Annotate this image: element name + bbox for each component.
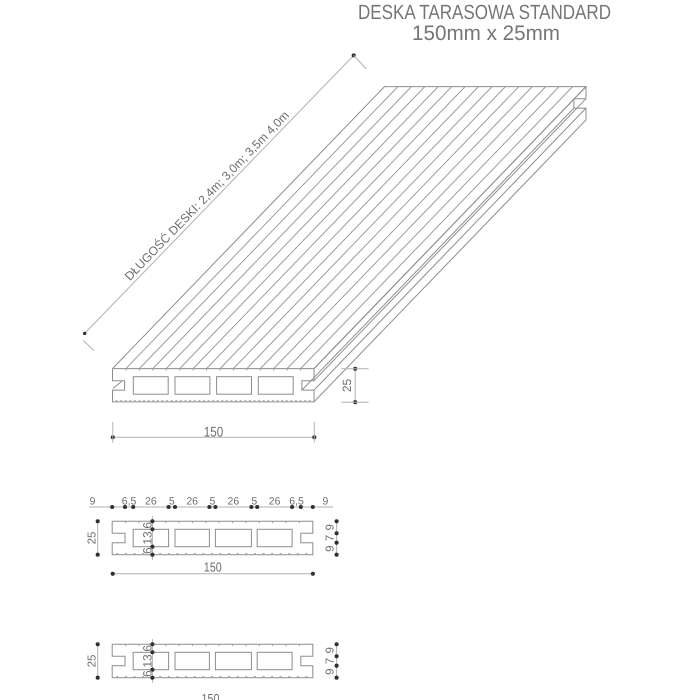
svg-text:7: 7 xyxy=(324,658,336,664)
svg-text:26: 26 xyxy=(145,495,157,507)
svg-text:26: 26 xyxy=(228,495,240,507)
svg-text:25: 25 xyxy=(340,379,354,393)
svg-text:7: 7 xyxy=(324,535,336,541)
svg-text:9: 9 xyxy=(324,668,336,674)
svg-text:13: 13 xyxy=(141,531,155,545)
svg-text:25: 25 xyxy=(86,532,98,545)
svg-text:6: 6 xyxy=(141,645,155,652)
svg-text:9: 9 xyxy=(322,495,328,507)
svg-text:6: 6 xyxy=(141,670,155,677)
svg-text:13: 13 xyxy=(141,654,155,668)
svg-text:9: 9 xyxy=(324,545,336,551)
svg-text:26: 26 xyxy=(186,495,198,507)
svg-text:6,5: 6,5 xyxy=(122,495,137,507)
svg-text:9: 9 xyxy=(324,647,336,653)
svg-text:5: 5 xyxy=(169,495,175,507)
svg-text:9: 9 xyxy=(90,495,96,507)
svg-text:5: 5 xyxy=(209,495,215,507)
svg-text:150: 150 xyxy=(204,560,222,575)
svg-text:150: 150 xyxy=(202,691,220,700)
svg-text:6: 6 xyxy=(141,547,155,554)
svg-text:9: 9 xyxy=(324,524,336,530)
svg-text:25: 25 xyxy=(86,655,98,668)
svg-text:150mm x 25mm: 150mm x 25mm xyxy=(412,22,560,45)
svg-text:6: 6 xyxy=(141,522,155,529)
svg-text:26: 26 xyxy=(269,495,281,507)
svg-text:DESKA TARASOWA STANDARD: DESKA TARASOWA STANDARD xyxy=(358,1,611,24)
svg-text:DŁUGOŚĆ DESKI: 2,4m; 3,0m;: DŁUGOŚĆ DESKI: 2,4m; 3,0m; 3,5m 4,0m xyxy=(122,108,292,283)
svg-text:5: 5 xyxy=(251,495,257,507)
svg-text:150: 150 xyxy=(204,423,224,439)
svg-text:6,5: 6,5 xyxy=(289,495,304,507)
